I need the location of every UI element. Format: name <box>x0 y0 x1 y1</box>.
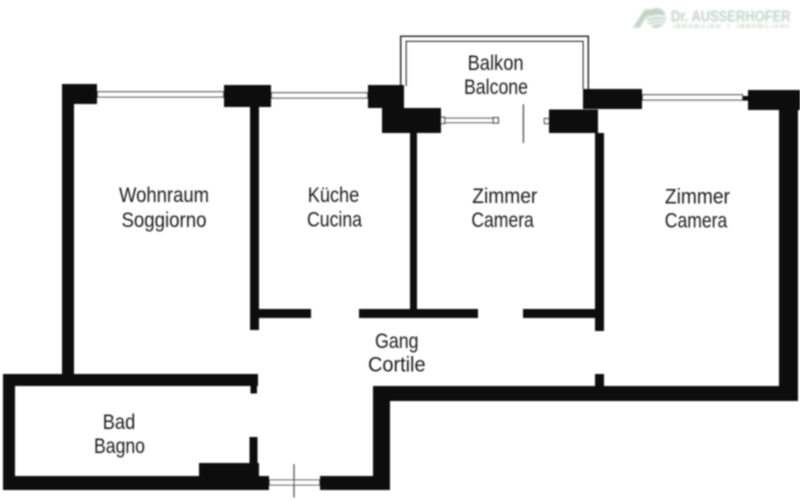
svg-text:Cortile: Cortile <box>368 354 426 377</box>
svg-text:Balcone: Balcone <box>464 76 528 99</box>
svg-text:Zimmer: Zimmer <box>665 186 730 209</box>
svg-text:Gang: Gang <box>375 330 419 353</box>
svg-text:Dr. AUSSERHOFER: Dr. AUSSERHOFER <box>671 8 791 25</box>
svg-text:Zimmer: Zimmer <box>472 185 537 208</box>
svg-text:IMMOBILIEN | IMMOBILIARE: IMMOBILIEN | IMMOBILIARE <box>673 24 791 30</box>
svg-text:Camera: Camera <box>471 209 534 232</box>
svg-text:Bad: Bad <box>103 411 136 434</box>
svg-text:Balkon: Balkon <box>468 52 524 75</box>
svg-text:Küche: Küche <box>308 184 360 207</box>
svg-text:Wohnraum: Wohnraum <box>119 184 209 207</box>
svg-text:Camera: Camera <box>665 210 728 233</box>
svg-text:Soggiorno: Soggiorno <box>122 209 207 232</box>
svg-text:Cucina: Cucina <box>307 209 362 232</box>
svg-text:Bagno: Bagno <box>94 435 145 458</box>
